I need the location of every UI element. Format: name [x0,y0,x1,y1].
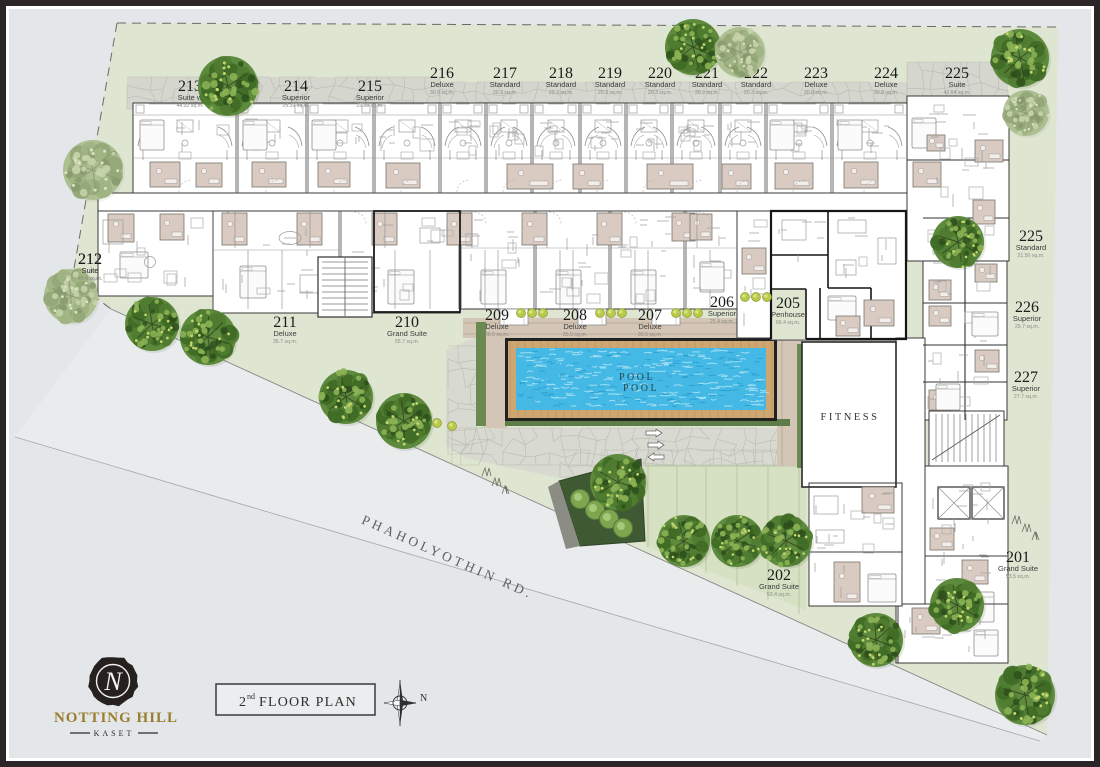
svg-text:45.4 sq.m.: 45.4 sq.m. [78,276,102,282]
svg-text:20.3 sq.m.: 20.3 sq.m. [549,90,573,96]
svg-text:POOL: POOL [619,372,655,383]
svg-text:Suite w: Suite w [178,93,203,102]
svg-text:53.5 sq.m.: 53.5 sq.m. [1006,574,1030,580]
svg-text:Deluxe: Deluxe [563,322,586,331]
svg-text:Superior: Superior [282,93,311,102]
svg-text:Grand Suite: Grand Suite [759,582,799,591]
svg-text:66.4 sq.m.: 66.4 sq.m. [776,320,800,326]
svg-text:Standard: Standard [595,80,625,89]
svg-text:30.8 sq.m.: 30.8 sq.m. [430,90,454,96]
svg-text:N: N [420,693,427,704]
svg-text:20.3 sq.m.: 20.3 sq.m. [744,90,768,96]
svg-text:20.3 sq.m.: 20.3 sq.m. [598,90,622,96]
svg-text:42.64 sq.m.: 42.64 sq.m. [943,90,970,96]
svg-text:Standard: Standard [645,80,675,89]
svg-text:FITNESS: FITNESS [821,412,880,423]
svg-text:Standard: Standard [490,80,520,89]
svg-text:FLOOR PLAN: FLOOR PLAN [259,695,357,710]
svg-text:27.7 sq.m.: 27.7 sq.m. [1014,394,1038,400]
svg-text:Deluxe: Deluxe [273,329,296,338]
svg-text:NOTTING HILL: NOTTING HILL [54,710,178,726]
svg-text:30.8 sq.m.: 30.8 sq.m. [804,90,828,96]
svg-text:Deluxe: Deluxe [430,80,453,89]
svg-text:N: N [103,667,123,696]
svg-text:55.7 sq.m.: 55.7 sq.m. [395,339,419,345]
svg-text:Suite: Suite [81,266,98,275]
svg-text:Superior: Superior [1013,314,1042,323]
svg-text:35.5 sq.m.: 35.5 sq.m. [563,332,587,338]
svg-text:30.8 sq.m.: 30.8 sq.m. [874,90,898,96]
svg-text:20.3 sq.m.: 20.3 sq.m. [493,90,517,96]
svg-text:Standard: Standard [1016,243,1046,252]
svg-text:Deluxe: Deluxe [638,322,661,331]
svg-text:Deluxe: Deluxe [485,322,508,331]
svg-text:Grand Suite: Grand Suite [387,329,427,338]
svg-text:Standard: Standard [546,80,576,89]
svg-text:2: 2 [239,695,246,710]
svg-text:25.39 sq.m.: 25.39 sq.m. [356,103,383,109]
svg-text:nd: nd [247,692,255,701]
svg-text:Deluxe: Deluxe [804,80,827,89]
svg-text:Suite: Suite [948,80,965,89]
svg-text:Standard: Standard [741,80,771,89]
svg-text:Superior: Superior [1012,384,1041,393]
svg-text:53.4 sq.m.: 53.4 sq.m. [767,592,791,598]
svg-text:25.4 sq.m.: 25.4 sq.m. [710,319,734,325]
svg-text:25.39 sq.m.: 25.39 sq.m. [282,103,309,109]
svg-text:Superior: Superior [708,309,737,318]
svg-text:POOL: POOL [623,383,659,394]
svg-text:Penhouse: Penhouse [771,310,805,319]
svg-text:35.5 sq.m.: 35.5 sq.m. [485,332,509,338]
svg-text:KASET: KASET [94,729,135,738]
svg-text:44.32 sq.m.: 44.32 sq.m. [176,103,203,109]
svg-text:21.50 sq.m.: 21.50 sq.m. [1017,253,1044,259]
svg-text:20.3 sq.m.: 20.3 sq.m. [648,90,672,96]
svg-text:Standard: Standard [692,80,722,89]
svg-text:35.5 sq.m.: 35.5 sq.m. [638,332,662,338]
svg-text:Grand Suite: Grand Suite [998,564,1038,573]
svg-text:35.7 sq.m.: 35.7 sq.m. [273,339,297,345]
svg-text:25.7 sq.m.: 25.7 sq.m. [1015,324,1039,330]
svg-text:20.3 sq.m.: 20.3 sq.m. [695,90,719,96]
svg-text:Deluxe: Deluxe [874,80,897,89]
svg-text:Superior: Superior [356,93,385,102]
